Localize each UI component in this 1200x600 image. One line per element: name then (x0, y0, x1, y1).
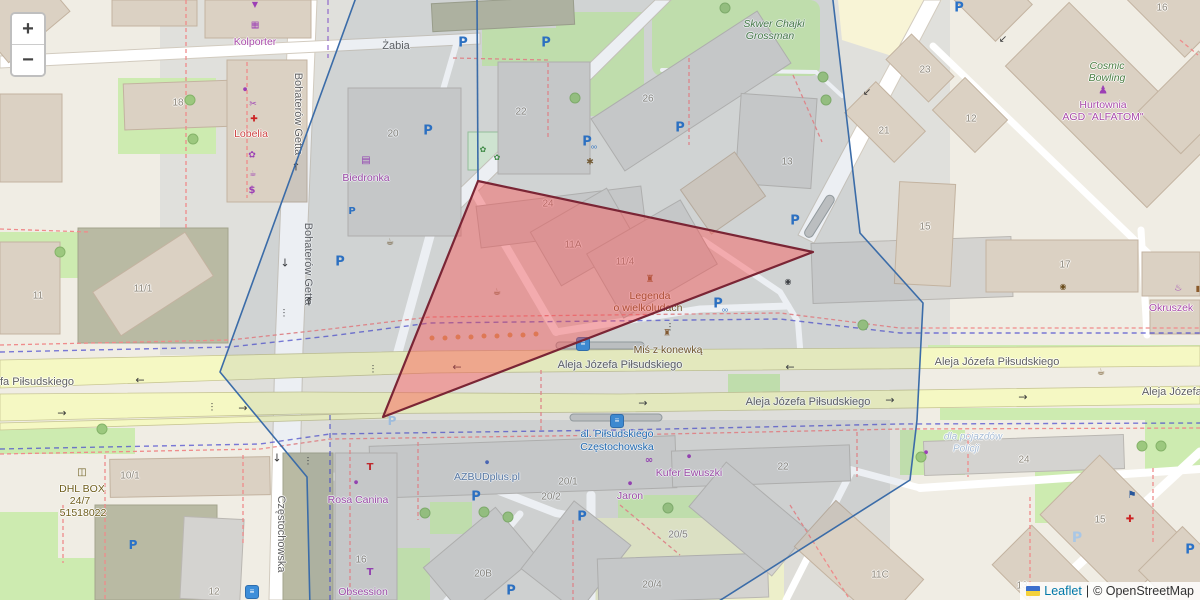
map-label: Bohaterów Getta (302, 223, 314, 306)
map-label: fa Piłsudskiego (0, 376, 74, 388)
artwork-icon: ✱ (586, 159, 594, 168)
tree-icon (1156, 441, 1167, 452)
map-label: AGD "ALFATOM" (1062, 111, 1143, 123)
map-label: 11/4 (616, 257, 635, 268)
map-label: 16 (355, 555, 366, 566)
money-icon: $ (249, 186, 256, 196)
map-label: Kufer Ewuszki (656, 467, 723, 479)
clinic-icon: ✚ (1126, 515, 1134, 525)
map-label: Bohaterów Getta (292, 73, 304, 156)
monument-icon: ♜ (646, 275, 655, 285)
map-label: 13 (781, 157, 792, 168)
playground-icon: ✿ (494, 154, 501, 162)
map-label: 12 (965, 114, 976, 125)
map-label: 23 (919, 65, 930, 76)
map-label: 11 (33, 291, 43, 302)
map-label: 22 (777, 462, 788, 473)
oneway-arrow-icon: ↓ (280, 258, 289, 269)
traffic-signal-icon: ⋮ (666, 324, 675, 333)
traffic-signal-icon: ⋮ (304, 458, 313, 467)
map-label: Okruszek (1149, 302, 1193, 314)
tree-icon (97, 424, 108, 435)
map-label: 10/1 (120, 471, 139, 482)
waste-basket-icon: ☕ (1097, 369, 1105, 378)
bollard-dot (482, 334, 487, 339)
zoom-in-button[interactable]: + (12, 14, 44, 45)
map-label: 15 (1094, 515, 1105, 526)
tram-stop-icon: ≡ (576, 337, 590, 351)
parking-icon: P (675, 122, 685, 135)
tram-stop-icon: ≡ (245, 585, 259, 599)
cafe-icon: ☕ (249, 170, 256, 178)
map-label: 24/7 (70, 495, 90, 507)
map-label: 15 (919, 222, 930, 233)
viewpoint-icon: ◉ (1060, 283, 1067, 291)
map-label: Grossman (746, 30, 794, 42)
parking-icon: P (790, 215, 800, 228)
map-label: 11/1 (134, 284, 153, 295)
parking-icon: P (1185, 544, 1195, 557)
parking-icon: P (348, 207, 355, 217)
pharmacy-icon: ✚ (250, 116, 258, 125)
map-label: Miś z konewką (634, 344, 703, 356)
map-label: Aleja Józefa Piłsudskiego (935, 356, 1060, 368)
tree-icon (55, 247, 66, 258)
map-label: Obsession (338, 586, 388, 598)
zoom-out-button[interactable]: − (12, 45, 44, 75)
map-label: 20/2 (541, 492, 560, 503)
tree-icon (858, 320, 869, 331)
traffic-signal-icon: ⋮ (208, 404, 217, 413)
parking-icon: P (954, 2, 964, 15)
oneway-arrow-icon: ↓ (272, 453, 281, 464)
florist-icon: ✿ (248, 152, 256, 161)
shop-dot-icon: ● (243, 88, 247, 93)
oneway-arrow-icon: → (638, 398, 647, 409)
oneway-arrow-icon: ↑ (291, 162, 300, 173)
camera-icon: ◉ (785, 278, 792, 286)
map-label: Policji (953, 444, 979, 455)
osm-link[interactable]: © OpenStreetMap (1093, 584, 1194, 598)
map-label: o wielkoludach (614, 302, 683, 314)
oneway-arrow-icon: ← (452, 362, 461, 373)
bollard-dot (534, 332, 539, 337)
map-label: 20B (474, 569, 492, 580)
attribution-bar: Leaflet | © OpenStreetMap (1020, 582, 1200, 600)
map-label: Skwer Chajki (743, 18, 804, 30)
hairdresser-icon: ✂ (249, 101, 257, 110)
map-label: Legenda (630, 290, 671, 302)
map-label: DHL BOX (59, 483, 105, 495)
map-label: al. Piłsudskiego (581, 428, 654, 440)
parking-icon: P (506, 585, 516, 598)
tree-icon (916, 452, 927, 463)
office-dot-icon: ● (485, 461, 489, 466)
oneway-arrow-icon: → (1018, 392, 1027, 403)
map-labels-layer: ŻabiaBohaterów GettaBohaterów GettaCzęst… (0, 0, 1200, 600)
map-label: 51518022 (60, 507, 107, 519)
map-label: 21 (878, 126, 889, 137)
bicycle-icon: oo (591, 146, 597, 151)
traffic-signal-icon: ⋮ (280, 310, 289, 319)
oneway-arrow-icon: ← (135, 375, 144, 386)
flag-icon: ⚑ (1128, 491, 1137, 501)
map-label: 18 (172, 98, 183, 109)
map-label: Częstochowska (580, 441, 654, 453)
zoom-control: + − (10, 12, 46, 77)
map-label: Kolporter (234, 36, 277, 48)
map-label: dla pojazdów (944, 432, 1002, 443)
oneway-arrow-icon: → (238, 403, 247, 414)
shop-dot-icon: ● (628, 482, 632, 487)
map-label: 17 (1059, 260, 1070, 271)
shop-dot-icon: ● (354, 481, 358, 486)
tree-icon (420, 508, 431, 519)
bollard-dot (443, 336, 448, 341)
tree-icon (185, 95, 196, 106)
map-label: 24 (542, 199, 553, 210)
bollard-dot (495, 334, 500, 339)
map-label: Żabia (382, 40, 410, 52)
map-label: AZBUDplus.pl (454, 471, 520, 483)
parking-icon: P (335, 256, 345, 269)
supermarket-icon: ▤ (361, 156, 370, 166)
map-label: Aleja Józefa Piłsudskiego (558, 359, 683, 371)
bollard-dot (430, 336, 435, 341)
bicycle-icon: oo (722, 309, 728, 314)
bollard-dot (456, 335, 461, 340)
waste-basket-icon: ☕ (386, 239, 394, 248)
map-canvas[interactable]: ŻabiaBohaterów GettaBohaterów GettaCzęst… (0, 0, 1200, 600)
tree-icon (503, 512, 514, 523)
oneway-arrow-icon: ↙ (999, 35, 1007, 45)
map-label: 16 (1156, 3, 1167, 14)
oneway-arrow-icon: ↙ (863, 88, 871, 98)
leaflet-link[interactable]: Leaflet (1044, 584, 1082, 598)
shop-dot-icon: ● (687, 455, 691, 460)
map-label: 20 (387, 129, 398, 140)
map-label: Aleja Józefa P (1142, 386, 1200, 398)
bollard-dot (469, 335, 474, 340)
tram-stop-icon: ≡ (610, 414, 624, 428)
clothes-icon: T (367, 568, 374, 578)
parcel-locker-icon: ▼ (252, 1, 258, 9)
map-label: 26 (642, 94, 653, 105)
map-label: 20/5 (668, 530, 687, 541)
optician-icon: ∞ (645, 456, 653, 466)
map-label: Rosa Canina (328, 494, 389, 506)
parking-icon: P (129, 539, 138, 551)
clothes-icon: T (367, 463, 374, 473)
map-label: Hurtownia (1079, 99, 1126, 111)
bowling-icon: ♟ (1098, 85, 1108, 96)
tree-icon (818, 72, 829, 83)
tree-icon (1137, 441, 1148, 452)
map-label: 22 (515, 107, 526, 118)
oneway-arrow-icon: → (57, 408, 66, 419)
map-label: Lobelia (234, 128, 268, 140)
map-label: Jaron (617, 490, 643, 502)
map-label: Bowling (1089, 72, 1126, 84)
map-label: 12 (208, 587, 219, 598)
parking-lot-icon: P (388, 415, 397, 427)
tree-icon (479, 507, 490, 518)
map-label: 11A (564, 240, 581, 251)
bakery-icon: ♨ (1174, 285, 1182, 294)
oneway-arrow-icon: ← (785, 362, 794, 373)
poi-icon: ▮ (1196, 285, 1200, 293)
map-label: Aleja Józefa Piłsudskiego (746, 396, 871, 408)
attribution-separator: | (1086, 584, 1089, 598)
map-label: Biedronka (342, 172, 389, 184)
parking-icon: P (423, 125, 433, 138)
parking-icon: P (471, 491, 481, 504)
map-label: 20/4 (642, 580, 661, 591)
tree-icon (821, 95, 832, 106)
parking-icon: P (577, 511, 587, 524)
map-label: Cosmic (1089, 60, 1124, 72)
parking-icon: P (541, 37, 551, 50)
ukraine-flag-icon (1026, 586, 1040, 596)
parking-lot-icon: P (1072, 531, 1082, 545)
oneway-arrow-icon: ↑ (304, 297, 313, 308)
map-label: 20/1 (558, 477, 577, 488)
parking-icon: P (582, 136, 592, 149)
parking-icon: P (458, 37, 468, 50)
bollard-dot (508, 333, 513, 338)
tree-icon (188, 134, 199, 145)
parcel-box-icon: ◫ (77, 468, 86, 478)
bollard-dot (521, 333, 526, 338)
kiosk-icon: ▦ (251, 22, 260, 31)
waste-basket-icon: ☕ (493, 289, 501, 298)
tree-icon (570, 93, 581, 104)
map-label: Częstochowska (275, 495, 287, 572)
tree-icon (663, 503, 674, 514)
map-label: 11C (871, 570, 889, 581)
oneway-arrow-icon: → (885, 395, 894, 406)
monument-icon: ♜ (663, 330, 671, 339)
traffic-signal-icon: ⋮ (369, 366, 378, 375)
playground-icon: ✿ (480, 146, 487, 154)
parking-icon: P (713, 298, 723, 311)
tree-icon (720, 3, 731, 14)
map-label: 24 (1018, 455, 1029, 466)
